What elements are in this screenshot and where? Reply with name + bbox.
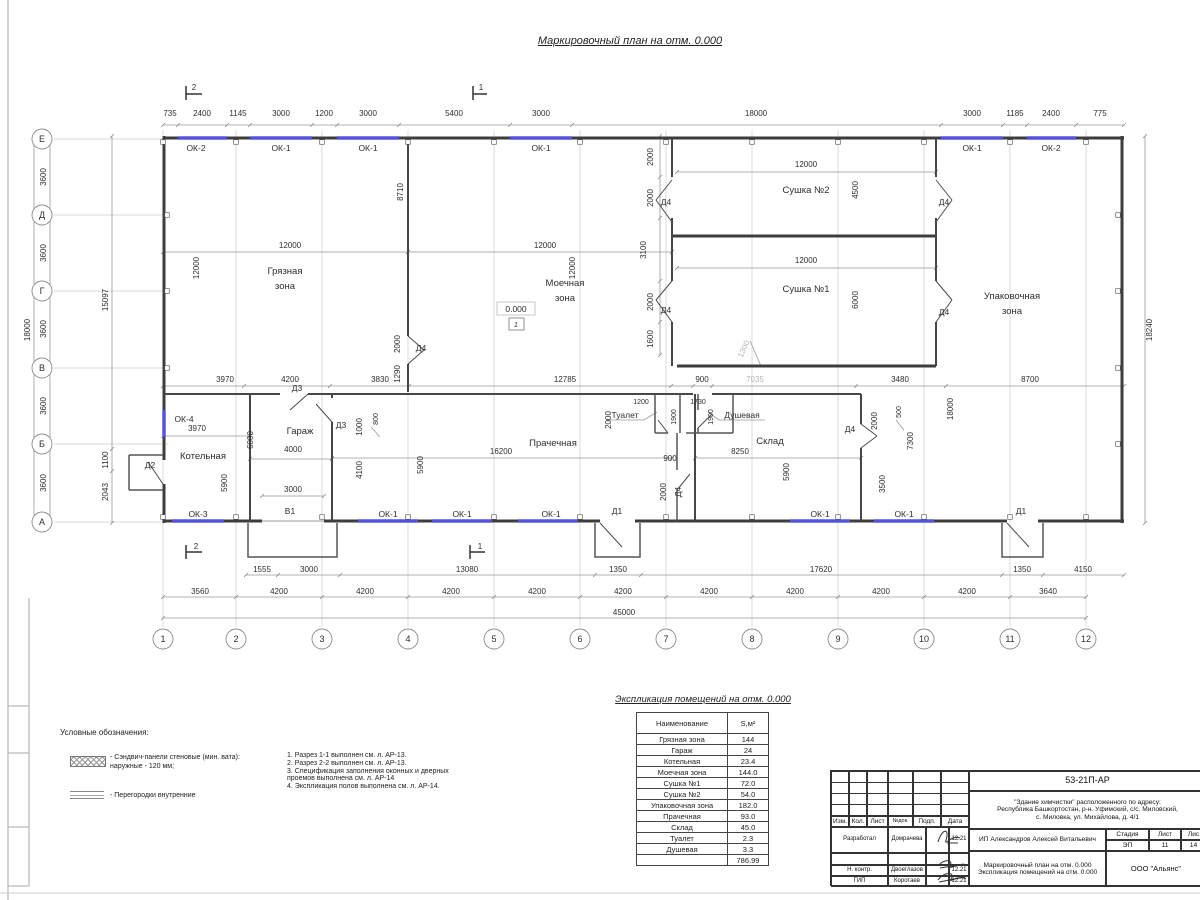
svg-text:2400: 2400 <box>193 109 211 118</box>
svg-text:4200: 4200 <box>442 587 460 596</box>
svg-text:775: 775 <box>1093 109 1107 118</box>
note-line: 2. Разрез 2-2 выполнен см. л. АР-13. <box>287 760 477 768</box>
signature-cell <box>926 865 949 876</box>
svg-text:18240: 18240 <box>1145 318 1154 341</box>
window-label-ok3: ОК-3 <box>188 509 207 519</box>
svg-text:4500: 4500 <box>851 181 860 199</box>
elevation-mark: 0.000 1 <box>497 302 535 330</box>
title-block: Изм. Кол. Лист №док. Подп. Дата Разработ… <box>830 770 1200 886</box>
svg-text:3000: 3000 <box>532 109 550 118</box>
svg-text:1730: 1730 <box>690 399 706 406</box>
axis-col-1: 1 <box>160 634 165 644</box>
role-ncontrol: Н. контр. <box>831 865 888 876</box>
room-sushka1: Сушка №1 <box>783 284 830 295</box>
explication-table: Наименование S,м² Грязная зона144 Гараж2… <box>636 712 769 866</box>
axis-col-5: 5 <box>491 634 496 644</box>
table-row: Гараж24 <box>637 745 769 756</box>
drawing-title: Маркировочный план на отм. 0.000 <box>470 35 790 47</box>
svg-text:3600: 3600 <box>39 320 48 338</box>
note-line: 1. Разрез 1-1 выполнен см. л. АР-13. <box>287 752 477 760</box>
svg-text:5900: 5900 <box>782 463 791 481</box>
svg-text:2000: 2000 <box>646 189 655 207</box>
window-label-ok1: ОК-1 <box>452 509 471 519</box>
svg-text:3100: 3100 <box>639 241 648 259</box>
date-developer: 12.21 <box>949 827 969 853</box>
section-label-2b: 2 <box>194 542 199 551</box>
svg-text:3500: 3500 <box>878 475 887 493</box>
section-label-1b: 1 <box>478 542 483 551</box>
svg-text:12785: 12785 <box>554 375 577 384</box>
svg-text:12000: 12000 <box>279 241 302 250</box>
drawing-sheet: { "title": "Маркировочный план на отм. 0… <box>0 0 1200 900</box>
svg-text:13080: 13080 <box>456 565 479 574</box>
svg-text:16200: 16200 <box>490 447 513 456</box>
window-label-ok1: ОК-1 <box>358 143 377 153</box>
axis-row-G: Г <box>40 286 45 296</box>
name-gip: Коротаев <box>888 876 926 887</box>
table-row: Сушка №254.0 <box>637 789 769 800</box>
th-podp: Подп. <box>913 816 941 827</box>
svg-text:1900: 1900 <box>671 409 678 425</box>
band-dimensions: 3970 4200 3830 12785 900 7035 3480 8700 … <box>216 338 1039 384</box>
th-sheets: Лис <box>1181 829 1200 840</box>
name-developer: Домрачева <box>888 827 926 853</box>
svg-text:5900: 5900 <box>220 474 229 492</box>
svg-text:12000: 12000 <box>568 256 577 279</box>
svg-text:900: 900 <box>663 454 677 463</box>
partition-swatch-icon <box>70 791 104 799</box>
svg-text:45000: 45000 <box>613 608 636 617</box>
svg-text:3480: 3480 <box>891 375 909 384</box>
svg-text:5400: 5400 <box>445 109 463 118</box>
svg-text:1300: 1300 <box>736 338 752 358</box>
svg-text:3000: 3000 <box>359 109 377 118</box>
svg-text:6000: 6000 <box>851 291 860 309</box>
axis-col-6: 6 <box>577 634 582 644</box>
svg-text:12000: 12000 <box>534 241 557 250</box>
sheet-value: 11 <box>1149 840 1181 851</box>
room-upakovochnaya: Упаковочная <box>984 291 1040 302</box>
svg-text:3600: 3600 <box>39 244 48 262</box>
top-dimensions: 735 2400 1145 3000 1200 3000 5400 3000 1… <box>163 109 1107 118</box>
axis-row-V: В <box>39 363 45 373</box>
table-row: Грязная зона144 <box>637 734 769 745</box>
axis-col-8: 8 <box>749 634 754 644</box>
svg-text:4000: 4000 <box>284 445 302 454</box>
total-area: 786.99 <box>728 855 769 866</box>
column-markers <box>163 142 1118 517</box>
th-data: Дата <box>941 816 969 827</box>
svg-text:1350: 1350 <box>609 565 627 574</box>
svg-text:1100: 1100 <box>101 451 110 469</box>
col-header-name: Наименование <box>637 713 728 734</box>
legend-item-1a: - Сэндвич-панели стеновые (мин. вата): <box>110 754 240 761</box>
svg-text:2000: 2000 <box>659 483 668 501</box>
door-label-d4: Д4 <box>939 307 950 317</box>
name-ncontrol: Двоеглазов <box>888 865 926 876</box>
section-label-1: 1 <box>479 83 484 92</box>
svg-text:3640: 3640 <box>1039 587 1057 596</box>
door-label-d4: Д4 <box>845 424 856 434</box>
dimension-chains <box>34 125 1145 618</box>
legend-item-2: - Перегородки внутренние <box>110 792 196 799</box>
stage-value: ЭП <box>1106 840 1149 851</box>
room-sklad: Склад <box>756 436 784 447</box>
axis-col-4: 4 <box>405 634 410 644</box>
gate-label-v1: В1 <box>285 506 296 516</box>
svg-text:1555: 1555 <box>253 565 271 574</box>
section-marks <box>186 86 487 559</box>
svg-text:5900: 5900 <box>416 456 425 474</box>
svg-text:4100: 4100 <box>355 461 364 479</box>
svg-text:4200: 4200 <box>958 587 976 596</box>
table-row: Туалет2.3 <box>637 833 769 844</box>
leader-lines <box>371 341 904 437</box>
window-label-ok1: ОК-1 <box>531 143 550 153</box>
svg-text:3970: 3970 <box>188 424 206 433</box>
svg-text:3000: 3000 <box>284 485 302 494</box>
svg-text:3560: 3560 <box>191 587 209 596</box>
svg-text:500: 500 <box>896 406 903 418</box>
svg-text:17620: 17620 <box>810 565 833 574</box>
svg-text:3970: 3970 <box>216 375 234 384</box>
table-row: Прачечная93.0 <box>637 811 769 822</box>
room-kotelnaya: Котельная <box>180 451 226 462</box>
svg-text:2000: 2000 <box>393 335 402 353</box>
table-row: Котельная23.4 <box>637 756 769 767</box>
svg-text:1: 1 <box>514 322 518 329</box>
svg-text:3600: 3600 <box>39 474 48 492</box>
svg-text:8700: 8700 <box>1021 375 1039 384</box>
table-total-row: 786.99 <box>637 855 769 866</box>
axis-col-7: 7 <box>663 634 668 644</box>
svg-text:2400: 2400 <box>1042 109 1060 118</box>
room-gryaznaya: Грязная <box>268 266 303 277</box>
legend: Условные обозначения: - Сэндвич-панели с… <box>60 728 290 753</box>
svg-text:18000: 18000 <box>946 397 955 420</box>
svg-text:3000: 3000 <box>272 109 290 118</box>
signature-cell <box>926 876 949 887</box>
door-label-d4: Д4 <box>661 305 672 315</box>
svg-text:4200: 4200 <box>786 587 804 596</box>
room-prachechnaya: Прачечная <box>529 438 577 449</box>
axis-col-10: 10 <box>919 634 929 644</box>
doc-name: Маркировочный план на отм. 0.000 Эксплик… <box>969 851 1106 887</box>
table-row: Упаковочная зона182.0 <box>637 800 769 811</box>
svg-text:8250: 8250 <box>731 447 749 456</box>
signature-cell <box>926 827 949 853</box>
svg-text:1000: 1000 <box>355 418 364 436</box>
svg-text:1145: 1145 <box>229 109 247 118</box>
axis-col-2: 2 <box>233 634 238 644</box>
room-tualet: Туалет <box>612 410 639 420</box>
table-row: Склад45.0 <box>637 822 769 833</box>
exterior-walls <box>163 136 1124 523</box>
room-garazh: Гараж <box>287 426 314 437</box>
th-stage: Стадия <box>1106 829 1149 840</box>
svg-text:12000: 12000 <box>795 256 818 265</box>
svg-text:зона: зона <box>275 281 296 292</box>
project-code: 53-21П-АР <box>969 771 1200 791</box>
window-label-ok1: ОК-1 <box>962 143 981 153</box>
svg-text:4200: 4200 <box>270 587 288 596</box>
note-line: 3. Спецификация заполнения оконных и две… <box>287 768 477 776</box>
axis-col-12: 12 <box>1081 634 1091 644</box>
window-label-ok1: ОК-1 <box>271 143 290 153</box>
partition-walls <box>129 394 1043 557</box>
svg-text:3830: 3830 <box>371 375 389 384</box>
axis-row-B: Б <box>39 439 45 449</box>
door-label-d4: Д4 <box>673 486 683 497</box>
svg-text:3000: 3000 <box>300 565 318 574</box>
room-sushka2: Сушка №2 <box>783 185 830 196</box>
door-label-d3: Д3 <box>292 383 303 393</box>
svg-text:2000: 2000 <box>646 148 655 166</box>
section-label-2: 2 <box>192 83 197 92</box>
svg-text:3000: 3000 <box>963 109 981 118</box>
client: ИП Александров Алексей Витальевич <box>969 829 1106 851</box>
th-sheet: Лист <box>1149 829 1181 840</box>
svg-text:4200: 4200 <box>700 587 718 596</box>
svg-text:зона: зона <box>1002 306 1023 317</box>
svg-text:735: 735 <box>163 109 177 118</box>
role-gip: ГИП <box>831 876 888 887</box>
svg-text:2043: 2043 <box>101 483 110 501</box>
axis-col-11: 11 <box>1005 634 1014 644</box>
svg-text:12000: 12000 <box>795 160 818 169</box>
svg-text:зона: зона <box>555 293 576 304</box>
svg-text:18000: 18000 <box>23 318 32 341</box>
door-label-d2: Д2 <box>145 460 156 470</box>
th-list: Лист <box>867 816 888 827</box>
svg-text:4200: 4200 <box>872 587 890 596</box>
organization: ООО "Альянс" <box>1106 851 1200 887</box>
svg-text:7035: 7035 <box>746 375 764 384</box>
door-label-d4: Д4 <box>416 343 427 353</box>
door-label-d3: Д3 <box>336 420 347 430</box>
room-dushevaya: Душевая <box>724 410 760 420</box>
window-strips <box>164 138 1076 521</box>
col-header-area: S,м² <box>728 713 769 734</box>
door-label-d4: Д4 <box>939 197 950 207</box>
svg-text:1200: 1200 <box>315 109 333 118</box>
explication-title: Экспликация помещений на отм. 0.000 <box>598 694 808 705</box>
role-developer: Разработал <box>831 827 888 853</box>
svg-text:1900: 1900 <box>708 409 715 425</box>
door-label-d4: Д4 <box>661 197 672 207</box>
room-moechnaya: Моечная <box>546 278 585 289</box>
svg-text:1350: 1350 <box>1013 565 1031 574</box>
svg-text:2000: 2000 <box>870 412 879 430</box>
note-line: проемов выполнена см. л. АР-14 <box>287 775 477 783</box>
door-label-d1: Д1 <box>1016 506 1027 516</box>
window-label-ok2: ОК-2 <box>1041 143 1060 153</box>
svg-text:800: 800 <box>373 413 380 425</box>
th-ndok: №док. <box>888 816 913 827</box>
svg-text:15097: 15097 <box>101 288 110 311</box>
svg-text:4200: 4200 <box>614 587 632 596</box>
window-label-ok1: ОК-1 <box>541 509 560 519</box>
axis-row-E: Е <box>39 134 45 144</box>
svg-text:6000: 6000 <box>246 431 255 449</box>
th-kol: Кол. <box>849 816 867 827</box>
svg-text:3600: 3600 <box>39 397 48 415</box>
sandwich-panel-swatch-icon <box>70 756 106 767</box>
svg-text:18000: 18000 <box>745 109 768 118</box>
date-gip: 12.21 <box>949 876 969 887</box>
notes: 1. Разрез 1-1 выполнен см. л. АР-13. 2. … <box>287 752 477 791</box>
svg-text:1185: 1185 <box>1006 109 1024 118</box>
svg-text:900: 900 <box>695 375 709 384</box>
window-label-ok1: ОК-1 <box>894 509 913 519</box>
th-izm: Изм. <box>831 816 849 827</box>
door-label-d1: Д1 <box>612 506 623 516</box>
axis-col-9: 9 <box>835 634 840 644</box>
axis-row-A: А <box>39 517 45 527</box>
axis-circles <box>32 129 1096 649</box>
legend-title: Условные обозначения: <box>60 728 290 737</box>
window-label-ok2: ОК-2 <box>186 143 205 153</box>
sheets-value: 14 <box>1181 840 1200 851</box>
window-label-ok4: ОК-4 <box>174 414 193 424</box>
axis-row-D: Д <box>39 210 45 220</box>
table-row: Душевая3.3 <box>637 844 769 855</box>
axis-col-3: 3 <box>319 634 324 644</box>
svg-text:7300: 7300 <box>906 432 915 450</box>
bottom-dimensions: 1555 3000 13080 1350 17620 1350 4150 356… <box>191 565 1092 617</box>
svg-text:2000: 2000 <box>646 293 655 311</box>
svg-text:12000: 12000 <box>192 256 201 279</box>
note-line: 4. Экспликация полов выполнена см. л. АР… <box>287 783 477 791</box>
project-address: "Здание химчистки" расположенного по адр… <box>969 791 1200 829</box>
legend-item-1b: наружные - 120 мм; <box>110 763 174 770</box>
svg-text:0.000: 0.000 <box>505 304 527 314</box>
opening-labels: ОК-2 ОК-1 ОК-1 ОК-1 ОК-1 ОК-2 ОК-4 ОК-3 … <box>145 143 1061 519</box>
table-row: Моечная зона144.0 <box>637 767 769 778</box>
table-row: Сушка №172.0 <box>637 778 769 789</box>
svg-text:8710: 8710 <box>396 183 405 201</box>
svg-text:3600: 3600 <box>39 168 48 186</box>
svg-text:4200: 4200 <box>528 587 546 596</box>
svg-text:4200: 4200 <box>356 587 374 596</box>
window-label-ok1: ОК-1 <box>378 509 397 519</box>
svg-text:1200: 1200 <box>633 399 649 406</box>
date-ncontrol: 12.21 <box>949 865 969 876</box>
svg-text:4150: 4150 <box>1074 565 1092 574</box>
svg-text:1290: 1290 <box>393 365 402 383</box>
window-label-ok1: ОК-1 <box>810 509 829 519</box>
svg-text:1600: 1600 <box>646 330 655 348</box>
